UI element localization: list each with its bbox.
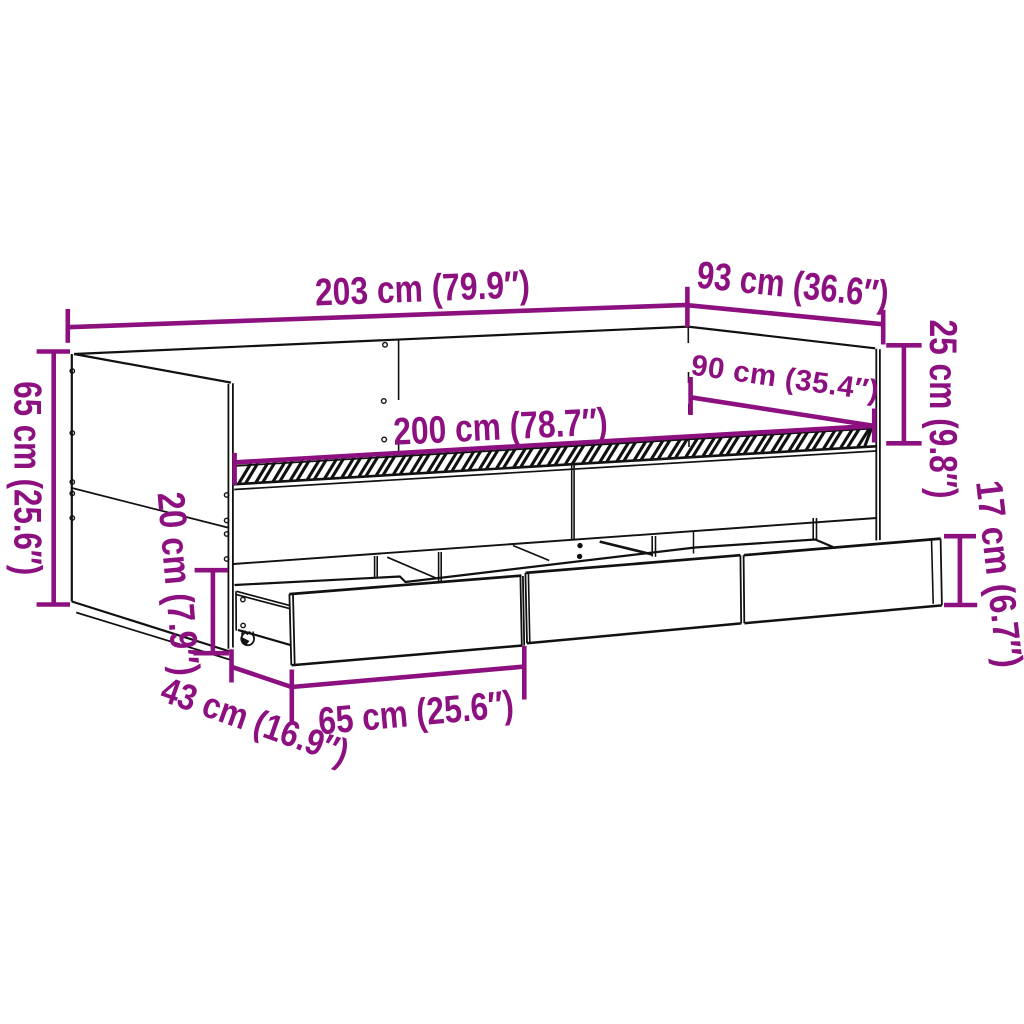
- svg-text:65 cm (25.6″): 65 cm (25.6″): [6, 381, 49, 575]
- svg-text:203 cm (79.9″): 203 cm (79.9″): [314, 263, 530, 314]
- svg-text:25 cm (9.8″): 25 cm (9.8″): [921, 320, 964, 499]
